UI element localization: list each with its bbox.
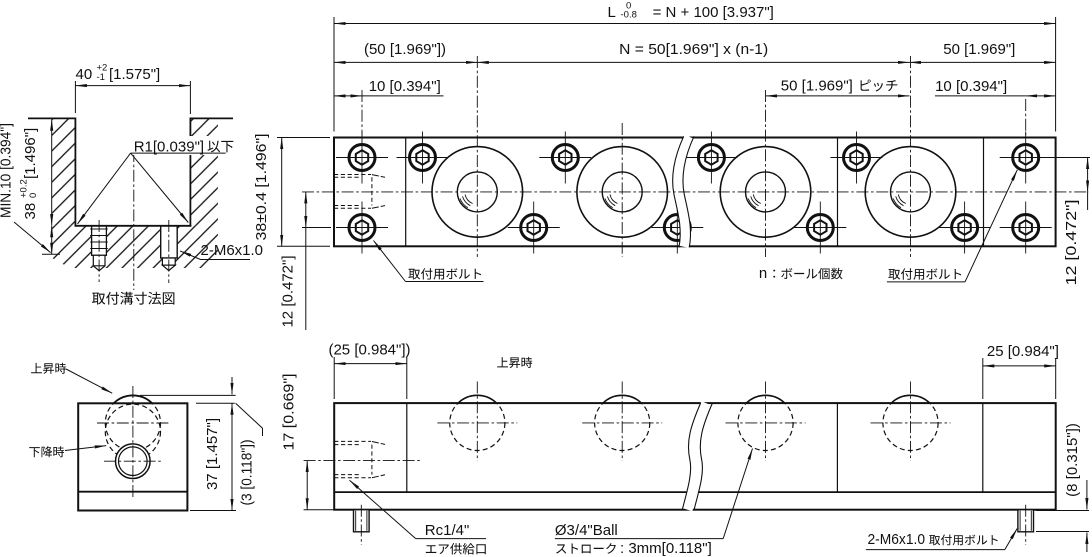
svg-text:(50 [1.969"]): (50 [1.969"])	[364, 41, 446, 58]
svg-text:-1: -1	[97, 72, 105, 83]
svg-text:37 [1.457"]: 37 [1.457"]	[204, 418, 221, 490]
svg-text:: 3mm[0.118"]: : 3mm[0.118"]	[620, 540, 712, 557]
svg-text:[1.575"]: [1.575"]	[109, 66, 160, 83]
svg-text:38: 38	[22, 203, 39, 220]
svg-text:(8 [0.315"]): (8 [0.315"])	[1064, 423, 1081, 497]
svg-text:25 [0.984"]: 25 [0.984"]	[987, 343, 1059, 360]
svg-text:n: n	[759, 265, 767, 282]
svg-text:= N + 100 [3.937"]: = N + 100 [3.937"]	[653, 4, 774, 21]
svg-text:10 [0.394"]: 10 [0.394"]	[935, 78, 1007, 95]
svg-text:12 [0.472"]: 12 [0.472"]	[1063, 200, 1080, 286]
svg-text:(3 [0.118"]): (3 [0.118"])	[239, 440, 256, 506]
svg-text:MIN.10 [0.394"]: MIN.10 [0.394"]	[0, 123, 15, 218]
svg-text:10 [0.394"]: 10 [0.394"]	[369, 78, 441, 95]
svg-text:17 [0.669"]: 17 [0.669"]	[281, 374, 298, 451]
svg-text:40: 40	[76, 66, 93, 83]
svg-text:N = 50[1.969"] x (n-1): N = 50[1.969"] x (n-1)	[619, 41, 768, 58]
svg-text:50 [1.969"]: 50 [1.969"]	[943, 41, 1015, 58]
svg-text:0: 0	[28, 193, 39, 198]
svg-text:Rc1/4": Rc1/4"	[425, 522, 470, 539]
svg-text:38±0.4 [1.496"]: 38±0.4 [1.496"]	[253, 134, 270, 241]
svg-text:2-M6x1.0: 2-M6x1.0	[868, 531, 926, 548]
svg-text:2-M6x1.0: 2-M6x1.0	[201, 242, 264, 259]
svg-text:[1.496"]: [1.496"]	[22, 128, 39, 179]
svg-text:(25 [0.984"]): (25 [0.984"])	[328, 342, 410, 359]
svg-text:L: L	[608, 4, 616, 21]
svg-text:Ø3/4"Ball: Ø3/4"Ball	[555, 522, 618, 539]
svg-text:12 [0.472"]: 12 [0.472"]	[280, 255, 297, 327]
svg-text:-0.8: -0.8	[621, 10, 637, 21]
svg-text:50 [1.969"]: 50 [1.969"]	[781, 78, 853, 95]
